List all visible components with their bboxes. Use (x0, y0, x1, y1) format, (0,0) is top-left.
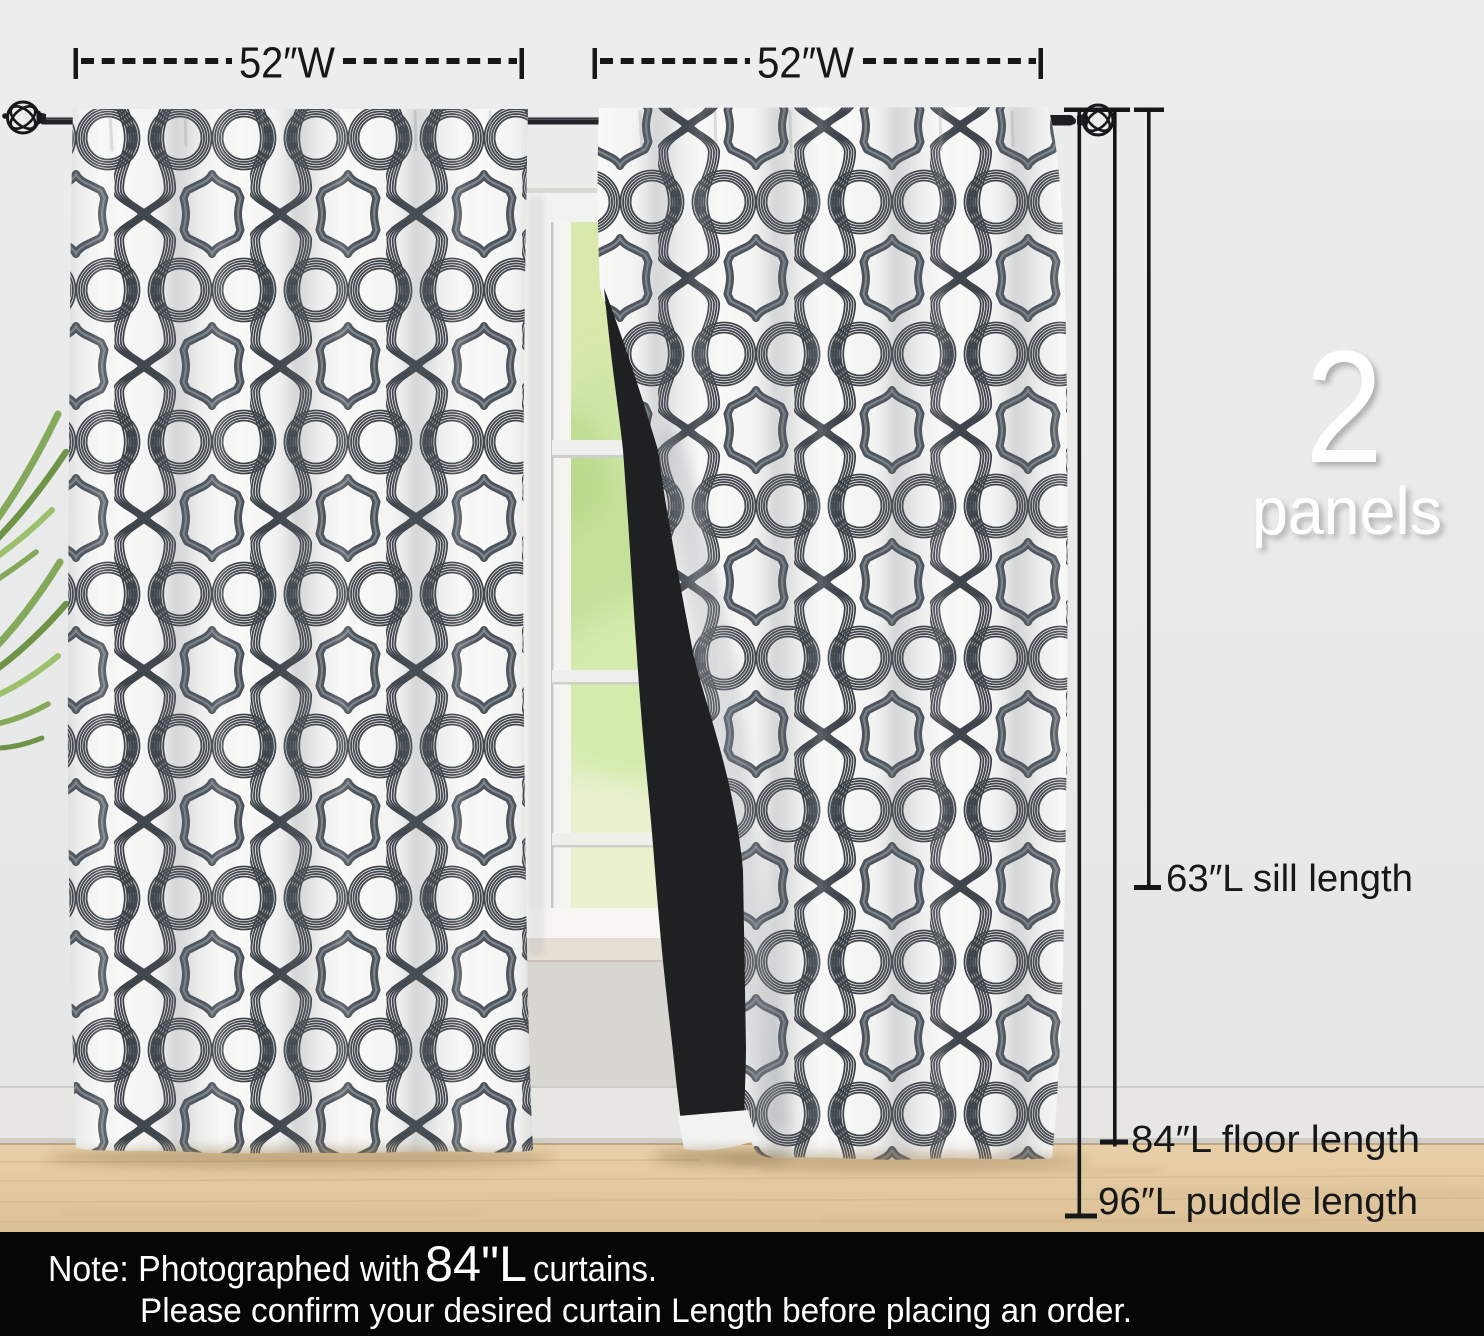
svg-text:63″L sill length: 63″L sill length (1166, 858, 1413, 900)
svg-text:Please confirm your desired cu: Please confirm your desired curtain Leng… (140, 1292, 1132, 1330)
svg-text:52″W: 52″W (757, 39, 854, 88)
svg-text:84"L: 84"L (425, 1236, 527, 1292)
svg-text:2: 2 (1305, 317, 1383, 496)
svg-text:52″W: 52″W (239, 39, 335, 88)
svg-text:96″L puddle length: 96″L puddle length (1098, 1181, 1418, 1223)
svg-text:curtains.: curtains. (533, 1248, 657, 1289)
svg-text:panels: panels (1252, 474, 1442, 549)
svg-text:Note: Photographed with: Note: Photographed with (48, 1248, 420, 1289)
svg-text:84″L floor length: 84″L floor length (1131, 1119, 1420, 1161)
